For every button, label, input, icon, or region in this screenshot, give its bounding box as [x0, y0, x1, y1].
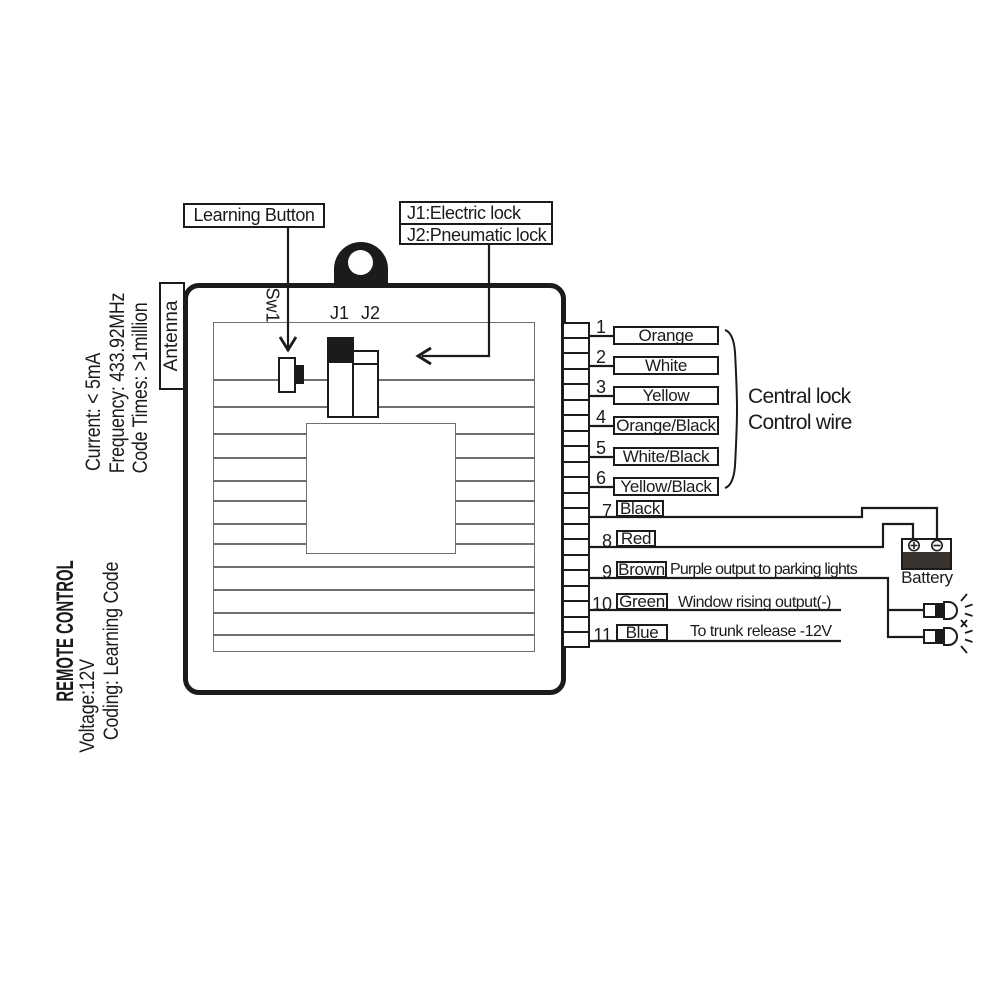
jumper-callout-line2: J2:Pneumatic lock	[401, 225, 551, 245]
wire-color-box: Yellow/Black	[613, 477, 719, 496]
jumper-callout-line1: J1:Electric lock	[401, 203, 551, 225]
learning-button-callout-label: Learning Button	[193, 205, 314, 226]
wire-color-label: Orange/Black	[616, 416, 715, 436]
connector-cell-divider	[562, 430, 590, 432]
lamp1-bulb	[943, 601, 958, 620]
lamp2-bulb	[943, 627, 958, 646]
wire-number: 4	[576, 407, 606, 428]
lamp1-filament-band	[935, 605, 943, 616]
pcb-trace-line	[213, 589, 535, 591]
central-lock-brace	[725, 330, 737, 488]
wire-number: 11	[582, 625, 612, 646]
lamp1-rays-icon	[961, 594, 973, 627]
wire-number: 10	[582, 594, 612, 615]
product-coding: Coding: Learning Code	[100, 562, 124, 740]
wire-color-box: Orange/Black	[613, 416, 719, 435]
j2-label: J2	[361, 303, 380, 324]
wire-color-box: White	[613, 356, 719, 375]
wire-color-label: Yellow/Black	[620, 477, 711, 497]
wire-number: 2	[576, 347, 606, 368]
connector-cell-divider	[562, 492, 590, 494]
wire-color-box: Red	[616, 530, 656, 547]
sw1-switch-actuator	[294, 365, 304, 384]
wire-number: 5	[576, 438, 606, 459]
mounting-tab-hole	[348, 250, 373, 275]
lamp2-filament-band	[935, 631, 943, 642]
wire-color-label: Brown	[618, 560, 665, 580]
j1-jumper-cap	[327, 337, 354, 363]
wire-color-label: Blue	[626, 623, 659, 643]
spec-current: Current: < 5mA	[82, 353, 106, 471]
wire-color-box: Brown	[616, 561, 667, 578]
wire-note: Purple output to parking lights	[670, 561, 857, 579]
wire-number: 1	[576, 317, 606, 338]
connector-cell-divider	[562, 461, 590, 463]
jumper-callout: J1:Electric lock J2:Pneumatic lock	[399, 201, 553, 245]
wire-note: To trunk release -12V	[690, 623, 832, 641]
wire-note: Window rising output(-)	[678, 594, 831, 612]
battery-label: Battery	[897, 569, 957, 587]
wire-number: 9	[582, 562, 612, 583]
sw1-label: Sw1	[262, 287, 283, 322]
wire-color-label: Black	[620, 499, 660, 519]
pcb-trace-line	[213, 612, 535, 614]
ic-chip	[306, 423, 456, 554]
wire-color-label: Red	[621, 529, 651, 549]
wire-number: 8	[582, 531, 612, 552]
central-lock-group-label: Central lock Control wire	[748, 384, 852, 436]
connector-cell-divider	[562, 585, 590, 587]
wire-color-label: Orange	[639, 326, 694, 346]
wire-color-box: White/Black	[613, 447, 719, 466]
antenna-label: Antenna	[161, 301, 183, 372]
pcb-trace-line	[213, 566, 535, 568]
connector-cell-divider	[562, 523, 590, 525]
wiring-diagram-page: Antenna Sw1 J1 J2 Learning Button J1:Ele…	[0, 0, 1000, 1000]
wire-color-label: White/Black	[623, 447, 709, 467]
learning-button-callout: Learning Button	[183, 203, 325, 228]
central-lock-group-label-line1: Central lock	[748, 384, 852, 410]
connector-cell-divider	[562, 554, 590, 556]
wire-color-box: Yellow	[613, 386, 719, 405]
lamp2-rays-icon	[961, 620, 973, 653]
j1-label: J1	[330, 303, 349, 324]
wire-color-label: White	[645, 356, 687, 376]
j1-jumper-cell	[327, 361, 354, 418]
product-voltage: Voltage:12V	[76, 659, 100, 752]
connector-cell-divider	[562, 399, 590, 401]
wire-number: 6	[576, 468, 606, 489]
wire-color-box: Green	[616, 593, 668, 610]
pcb-trace-line	[213, 634, 535, 636]
wire-color-box: Orange	[613, 326, 719, 345]
spec-code-times: Code Times: >1million	[129, 303, 153, 474]
spec-frequency: Frequency: 433.92MHz	[106, 293, 130, 473]
j2-jumper-cell-bottom	[352, 363, 379, 418]
wire-number: 7	[582, 501, 612, 522]
wire-number: 3	[576, 377, 606, 398]
battery-symbol-fill	[903, 552, 950, 568]
wire-color-box: Blue	[616, 624, 668, 641]
connector-cell-divider	[562, 616, 590, 618]
wire-color-label: Yellow	[643, 386, 690, 406]
central-lock-group-label-line2: Control wire	[748, 410, 852, 436]
wire-color-box: Black	[616, 500, 664, 517]
wire-color-label: Green	[619, 592, 665, 612]
